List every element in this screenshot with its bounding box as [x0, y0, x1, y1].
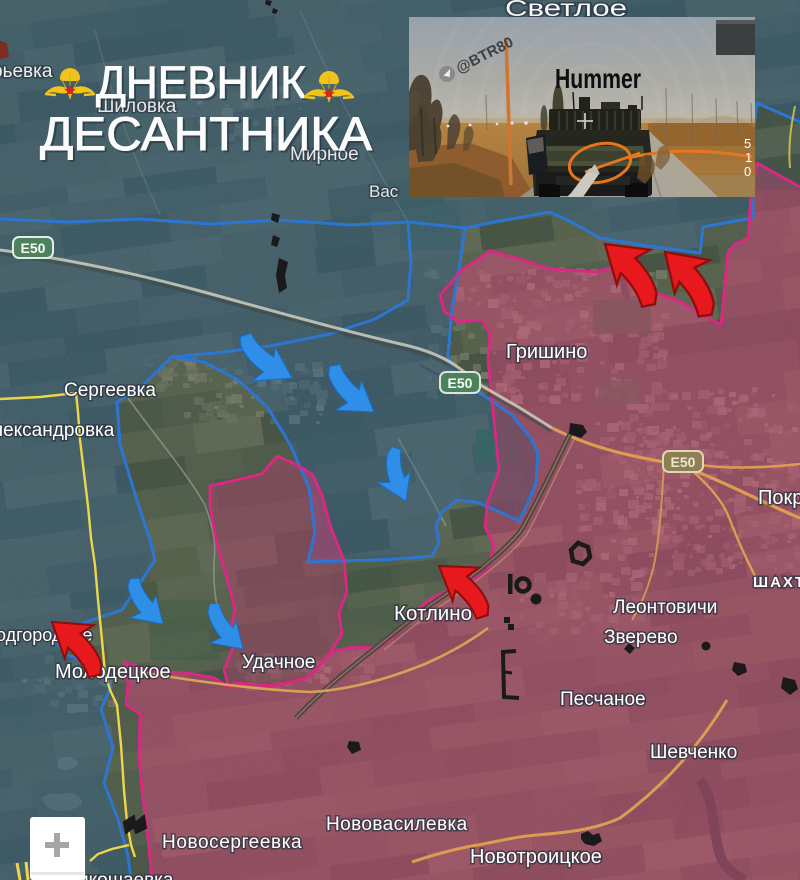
svg-text:Шевченко: Шевченко: [650, 742, 737, 763]
svg-text:Сергеевка: Сергеевка: [64, 380, 156, 401]
svg-text:Леонтовичи: Леонтовичи: [613, 597, 717, 618]
svg-text:Новосергеевка: Новосергеевка: [162, 832, 302, 853]
svg-text:0: 0: [744, 164, 751, 179]
svg-text:рьевка: рьевка: [0, 61, 53, 82]
svg-text:ДЕСАНТНИКА: ДЕСАНТНИКА: [40, 107, 373, 160]
svg-text:ШАХТЕ: ШАХТЕ: [753, 574, 800, 591]
svg-text:Молодецкое: Молодецкое: [55, 661, 171, 683]
svg-text:5: 5: [744, 136, 751, 151]
svg-text:ДНЕВНИК: ДНЕВНИК: [96, 57, 306, 108]
svg-text:Новотроицкое: Новотроицкое: [470, 846, 602, 868]
svg-text:Зверево: Зверево: [604, 627, 678, 648]
svg-text:Hummer: Hummer: [555, 63, 641, 94]
svg-text:Гришино: Гришино: [506, 341, 587, 363]
svg-text:Удачное: Удачное: [242, 652, 315, 673]
svg-text:Котлино: Котлино: [394, 602, 472, 625]
svg-text:Нововасилевка: Нововасилевка: [326, 814, 468, 835]
svg-text:Песчаное: Песчаное: [560, 689, 646, 710]
svg-text:лександровка: лександровка: [0, 420, 115, 441]
svg-text:Покровск: Покровск: [758, 487, 800, 509]
svg-text:Вас: Вас: [369, 182, 399, 201]
svg-text:икошаевка: икошаевка: [78, 870, 174, 880]
svg-text:1: 1: [745, 150, 752, 165]
